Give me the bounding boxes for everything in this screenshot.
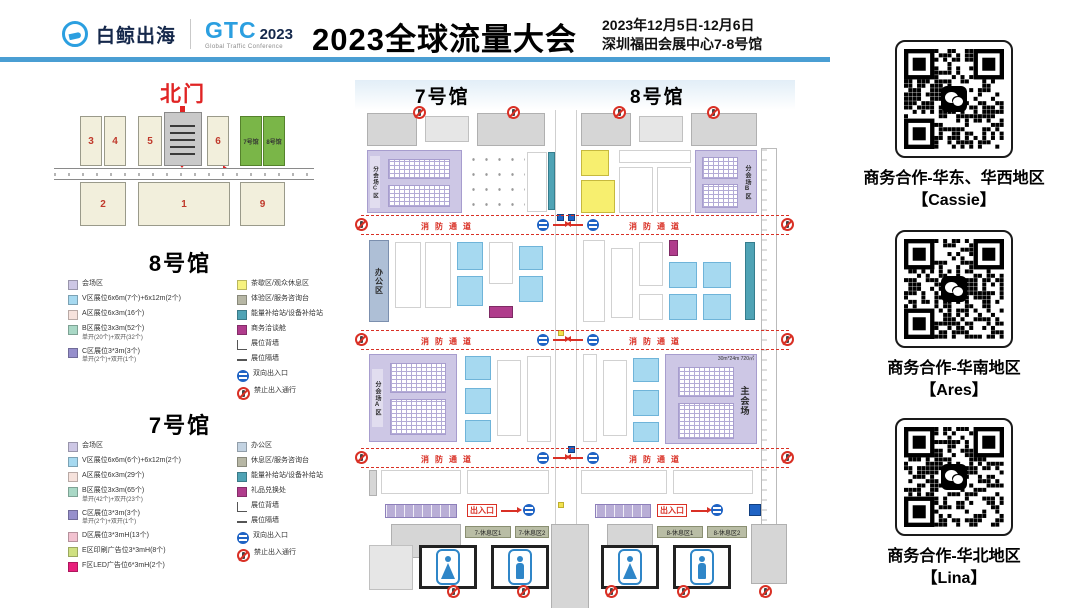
rest-area-label: 8-休息区2 — [707, 526, 747, 538]
no-entry-icon — [781, 451, 794, 464]
hall7-subvenue-a-area: 分会场A区 — [369, 354, 457, 442]
fire-lane-text: 消防通道 — [421, 221, 477, 232]
legend-item: 双向出入口 — [237, 532, 347, 544]
rest-area-label: 7-休息区2 — [515, 526, 549, 538]
legend-item: 体验区/服务咨询台 — [237, 295, 347, 305]
swatch-rest-area — [237, 457, 247, 467]
contact-name: 【Cassie】 — [848, 190, 1060, 212]
overview-hall-7: 7号馆 — [240, 116, 262, 166]
female-icon — [441, 563, 455, 579]
legend-item: 展位背墙 — [237, 340, 347, 350]
legend-label: 礼品兑换处 — [251, 487, 286, 496]
direction-arrow-icon — [571, 339, 583, 341]
two-way-entrance-icon — [237, 370, 249, 382]
wechat-icon — [941, 86, 967, 112]
hall9-label: 9 — [260, 199, 266, 210]
tea-break-area — [581, 150, 609, 176]
legend-item: A区展位6x3m(29个) — [68, 472, 230, 482]
swatch-c-booth — [68, 510, 78, 520]
booth-partition-icon — [237, 355, 247, 365]
gtc-logo-text: GTC — [205, 19, 257, 42]
a-booth-pairs — [639, 294, 663, 320]
facility-block — [581, 113, 631, 146]
main-venue-dimensions: 30m*24m 720㎡ — [718, 357, 754, 363]
hall7-subvenue-c-area: 分会场C区 — [367, 150, 462, 213]
legend-item: 禁止出入通行 — [237, 549, 347, 562]
qr-pattern — [904, 49, 1004, 149]
swatch-b-booth — [68, 487, 78, 497]
swatch-b-booth — [68, 325, 78, 335]
legend-label: 禁止出入通行 — [254, 549, 296, 558]
v-booth — [457, 276, 483, 306]
gtc-logo: GTC 2023 Global Traffic Conference — [205, 19, 293, 50]
a-booth-column — [527, 152, 547, 212]
legend-hall7-left-column: 会场区 V区展位6x6m(6个)+6x12m(2个) A区展位6x3m(29个)… — [68, 442, 230, 577]
b-booth-column — [583, 240, 605, 322]
subvenue-c-label: 分会场C区 — [370, 156, 380, 208]
legend-label: 展位背墙 — [251, 340, 279, 349]
hall8-subvenue-b-area: 分会场B区 — [695, 150, 757, 213]
legend-item: D区展位3*3mH(13个) — [68, 532, 230, 542]
restroom-female — [419, 545, 477, 589]
contact-name: 【Lina】 — [848, 568, 1060, 590]
hall3-label: 3 — [88, 136, 94, 147]
floorplan-hall8-title: 8号馆 — [630, 82, 685, 109]
hall2-label: 2 — [100, 199, 106, 210]
fire-lane: 消防通道 消防通道 — [361, 448, 789, 468]
no-entry-icon — [781, 218, 794, 231]
rest-area-label: 7-休息区1 — [465, 526, 511, 538]
legend-label: 办公区 — [251, 442, 272, 451]
swatch-gift-exchange — [237, 487, 247, 497]
two-way-entrance-icon — [587, 334, 599, 346]
event-date: 2023年12月5日-12月6日 — [602, 16, 762, 35]
fire-lane-text: 消防通道 — [629, 336, 685, 347]
a-booth-pairs — [425, 242, 451, 308]
overview-hall-5: 5 — [138, 116, 162, 166]
legend-label: 会场区 — [82, 280, 103, 289]
direction-arrow-icon — [553, 224, 565, 226]
no-entry-icon — [677, 585, 690, 598]
hall4-label: 4 — [112, 136, 118, 147]
fire-lane-text: 消防通道 — [629, 454, 685, 465]
swatch-supply-station — [237, 472, 247, 482]
fire-lane-text: 消防通道 — [421, 454, 477, 465]
no-entry-icon — [355, 451, 368, 464]
female-icon — [627, 556, 633, 562]
b-booth-column — [583, 354, 597, 442]
v-booth — [633, 422, 659, 442]
baijing-logo-text: 白鲸出海 — [96, 21, 176, 48]
legend-item: B区展位3x3m(65个)单开(42个)+双开(23个) — [68, 487, 230, 505]
legend-hall8-right-column: 茶歇区/观众休息区 体验区/服务咨询台 能量补给站/设备补给站 商务洽谈舱 展位… — [237, 280, 347, 405]
logo-divider — [190, 19, 191, 49]
facility-block — [551, 524, 589, 608]
legend-item: 展位隔墙 — [237, 355, 347, 365]
legend-label: 展位背墙 — [251, 502, 279, 511]
swatch-tea-area — [237, 280, 247, 290]
v-booth — [633, 390, 659, 416]
d-booth-strip — [385, 504, 457, 518]
qr-pattern — [904, 239, 1004, 339]
exit-label: 出入口 — [467, 504, 497, 517]
legend-item: 能量补给站/设备补给站 — [237, 472, 347, 482]
swatch-supply-station — [237, 310, 247, 320]
female-icon — [445, 556, 451, 562]
legend-label: C区展位3*3m(3个)单开(2个)+双开(1个) — [82, 510, 140, 528]
v-booth — [457, 242, 483, 270]
legend-item: V区展位6x6m(7个)+6x12m(2个) — [68, 295, 230, 305]
no-entry-icon — [237, 549, 250, 562]
legend-item: 办公区 — [237, 442, 347, 452]
legend-label: 展位隔墙 — [251, 355, 279, 364]
swatch-d-booth — [68, 532, 78, 542]
male-icon — [699, 556, 705, 562]
no-entry-icon — [759, 585, 772, 598]
legend-label: A区展位6x3m(29个) — [82, 472, 144, 481]
legend-label-main: B区展位3x3m(52个) — [82, 325, 144, 332]
legend-label-main: B区展位3x3m(65个) — [82, 487, 144, 494]
restroom-sign — [508, 549, 532, 585]
b-booth-row — [467, 470, 549, 494]
v-booth — [519, 276, 543, 302]
seating-grid — [702, 184, 738, 208]
legend-item: 展位隔墙 — [237, 517, 347, 527]
swatch-venue-area — [68, 442, 78, 452]
v-booth — [669, 294, 697, 320]
direction-arrow-icon — [553, 339, 565, 341]
a-booth-pairs — [497, 360, 521, 436]
qr-code-ares — [895, 230, 1013, 348]
legend-label-main: C区展位3*3m(3个) — [82, 510, 140, 517]
page-title: 2023全球流量大会 — [312, 14, 602, 59]
legend-label: 商务洽谈舱 — [251, 325, 286, 334]
contact-region: 商务合作-华北地区 — [848, 546, 1060, 568]
swatch-f-led — [68, 562, 78, 572]
swatch-venue-area — [68, 280, 78, 290]
no-entry-icon — [613, 106, 626, 119]
swatch-a-booth — [68, 310, 78, 320]
direction-arrow-icon — [553, 457, 565, 459]
fire-lane-text: 消防通道 — [629, 221, 685, 232]
restroom-sign — [436, 549, 460, 585]
restroom-male — [491, 545, 549, 589]
contact-label-lina: 商务合作-华北地区 【Lina】 — [848, 546, 1060, 589]
two-way-entrance-icon — [537, 452, 549, 464]
rigging-point-grid — [467, 152, 525, 210]
legend-item: 会场区 — [68, 280, 230, 290]
supply-station-strip — [745, 242, 755, 320]
no-entry-icon — [355, 218, 368, 231]
corridor-marker — [558, 502, 564, 508]
seating-grid — [388, 185, 450, 207]
qr-code-lina — [895, 418, 1013, 536]
fire-lane: 消防通道 消防通道 — [361, 330, 789, 350]
baijing-whale-logo-icon — [62, 21, 88, 47]
a-booth-pairs — [603, 360, 627, 436]
seating-grid — [678, 403, 734, 439]
supply-station-strip — [548, 152, 555, 210]
v-booth — [703, 294, 731, 320]
legend-label: 会场区 — [82, 442, 103, 451]
facility-block — [367, 113, 417, 146]
b-booth-row — [381, 470, 461, 494]
biz-pod — [669, 240, 678, 256]
two-way-entrance-icon — [537, 334, 549, 346]
b-booth-row — [673, 470, 753, 494]
subvenue-b-label: 分会场B区 — [742, 158, 753, 206]
seating-grid — [388, 159, 450, 179]
overview-hall-1: 1 — [138, 182, 230, 226]
office-area-label: 办公区 — [370, 241, 388, 321]
v-booth — [465, 388, 491, 414]
overview-north-entrance — [164, 112, 202, 166]
overview-hall-8: 8号馆 — [263, 116, 285, 166]
biz-pod — [489, 306, 513, 318]
seating-grid — [678, 367, 734, 397]
no-entry-icon — [605, 585, 618, 598]
direction-arrow-icon — [501, 510, 517, 512]
facility-block — [751, 524, 787, 584]
no-entry-icon — [781, 333, 794, 346]
legend-label-sub: 单开(20个)+双开(32个) — [82, 335, 143, 341]
b-booth-grid — [657, 167, 691, 213]
restroom-female — [601, 545, 659, 589]
v-booth — [669, 262, 697, 288]
female-icon — [623, 563, 637, 579]
qr-code-cassie — [895, 40, 1013, 158]
male-icon — [517, 556, 523, 562]
legend-label-sub: 单开(42个)+双开(23个) — [82, 497, 143, 503]
two-way-entrance-icon — [711, 504, 723, 516]
legend-label: B区展位3x3m(65个)单开(42个)+双开(23个) — [82, 487, 144, 505]
swatch-office-area — [237, 442, 247, 452]
legend-item: E区印刷广告位3*3mH(8个) — [68, 547, 230, 557]
header-logos: 白鲸出海 GTC 2023 Global Traffic Conference — [62, 14, 293, 54]
wechat-icon — [941, 464, 967, 490]
contact-name: 【Ares】 — [848, 380, 1060, 402]
two-way-entrance-icon — [523, 504, 535, 516]
legend-item: 礼品兑换处 — [237, 487, 347, 497]
facility-block — [369, 470, 377, 496]
b-booth-grid — [619, 167, 653, 213]
legend-label: B区展位3x3m(52个)单开(20个)+双开(32个) — [82, 325, 144, 343]
legend-hall7-right-column: 办公区 休息区/服务咨询台 能量补给站/设备补给站 礼品兑换处 展位背墙 展位隔… — [237, 442, 347, 567]
fire-lane: 消防通道 消防通道 — [361, 215, 789, 235]
corridor-marker — [749, 504, 761, 516]
overview-hall-6: 6 — [207, 116, 229, 166]
legend-label: 禁止出入通行 — [254, 387, 296, 396]
hall6-label: 6 — [215, 136, 221, 147]
main-venue-label: 主会场 — [738, 375, 752, 427]
office-area: 办公区 — [369, 240, 389, 322]
contact-region: 商务合作-华东、华西地区 — [848, 168, 1060, 190]
legend-label-sub: 单开(2个)+双开(1个) — [82, 357, 136, 363]
legend-hall8-heading: 8号馆 — [30, 246, 330, 278]
swatch-experience-area — [237, 295, 247, 305]
seating-grid — [390, 363, 446, 393]
legend-hall8: 会场区 V区展位6x6m(7个)+6x12m(2个) A区展位6x3m(16个)… — [68, 280, 348, 400]
restroom-sign — [690, 549, 714, 585]
venue-overview-map: 北门 3 4 5 6 7号馆 8号馆 2 1 9 — [30, 78, 330, 246]
legend-label: C区展位3*3m(3个)单开(2个)+双开(1个) — [82, 348, 140, 366]
restroom-sign — [618, 549, 642, 585]
seating-grid — [390, 399, 446, 435]
legend-item: 禁止出入通行 — [237, 387, 347, 400]
subvenue-a-label: 分会场A区 — [372, 369, 383, 427]
legend-hall7-heading: 7号馆 — [30, 408, 330, 440]
legend-item: 会场区 — [68, 442, 230, 452]
legend-label: 双向出入口 — [253, 370, 288, 379]
a-booth-pairs — [489, 242, 513, 284]
v-booth — [465, 356, 491, 380]
event-floorplan-poster: 白鲸出海 GTC 2023 Global Traffic Conference … — [0, 0, 1080, 608]
legend-item: V区展位6x6m(6个)+6x12m(2个) — [68, 457, 230, 467]
legend-label: 体验区/服务咨询台 — [251, 295, 309, 304]
hall1-label: 1 — [181, 199, 187, 210]
facility-block — [369, 545, 413, 590]
facility-block — [425, 116, 469, 142]
male-icon — [698, 563, 706, 579]
legend-item: 茶歇区/观众休息区 — [237, 280, 347, 290]
detailed-floorplan: 7号馆 8号馆 分会场C区 — [355, 80, 795, 605]
booth-partition-icon — [237, 517, 247, 527]
qr-pattern — [904, 427, 1004, 527]
a-booth-pairs — [395, 242, 421, 308]
north-gate-label: 北门 — [148, 78, 218, 108]
hall5-label: 5 — [147, 136, 153, 147]
overview-hall-4: 4 — [104, 116, 126, 166]
swatch-c-booth — [68, 348, 78, 358]
legend-item: 休息区/服务咨询台 — [237, 457, 347, 467]
swatch-biz-pod — [237, 325, 247, 335]
contact-label-ares: 商务合作-华南地区 【Ares】 — [848, 358, 1060, 401]
legend-label: 能量补给站/设备补给站 — [251, 310, 323, 319]
seating-grid — [702, 157, 738, 179]
legend-label: 能量补给站/设备补给站 — [251, 472, 323, 481]
contact-label-cassie: 商务合作-华东、华西地区 【Cassie】 — [848, 168, 1060, 211]
b-booth-column — [611, 248, 633, 318]
swatch-v-booth — [68, 457, 78, 467]
no-entry-icon — [707, 106, 720, 119]
overview-road — [54, 168, 314, 180]
d-booth-strip — [595, 504, 651, 518]
legend-label: E区印刷广告位3*3mH(8个) — [82, 547, 166, 556]
gtc-logo-subtitle: Global Traffic Conference — [205, 44, 293, 50]
legend-label: F区LED广告位6*3mH(2个) — [82, 562, 165, 571]
overview-hall-9: 9 — [240, 182, 285, 226]
v-booth — [703, 262, 731, 288]
legend-item: C区展位3*3m(3个)单开(2个)+双开(1个) — [68, 510, 230, 528]
v-booth — [465, 420, 491, 442]
b-booth-grid — [527, 356, 551, 442]
legend-hall7: 会场区 V区展位6x6m(6个)+6x12m(2个) A区展位6x3m(29个)… — [68, 442, 348, 602]
overview-hall-3: 3 — [80, 116, 102, 166]
legend-label: A区展位6x3m(16个) — [82, 310, 144, 319]
facility-block — [691, 113, 757, 146]
exit-label: 出入口 — [657, 504, 687, 517]
direction-arrow-icon — [571, 224, 583, 226]
header-divider-bar — [0, 57, 830, 62]
rest-area-label: 8-休息区1 — [657, 526, 703, 538]
hall7-green-label: 7号馆 — [243, 137, 258, 146]
no-entry-icon — [447, 585, 460, 598]
hall8-main-venue-area: 30m*24m 720㎡ 主会场 — [665, 354, 757, 444]
restroom-male — [673, 545, 731, 589]
two-way-entrance-icon — [537, 219, 549, 231]
legend-item: 商务洽谈舱 — [237, 325, 347, 335]
two-way-entrance-icon — [587, 219, 599, 231]
fire-lane-text: 消防通道 — [421, 336, 477, 347]
booth-backwall-icon — [237, 502, 247, 512]
legend-hall8-left-column: 会场区 V区展位6x6m(7个)+6x12m(2个) A区展位6x3m(16个)… — [68, 280, 230, 370]
legend-label: 展位隔墙 — [251, 517, 279, 526]
direction-arrow-icon — [571, 457, 583, 459]
legend-item: 双向出入口 — [237, 370, 347, 382]
a-booth-pairs — [639, 242, 663, 286]
swatch-a-booth — [68, 472, 78, 482]
legend-item: B区展位3x3m(52个)单开(20个)+双开(32个) — [68, 325, 230, 343]
no-entry-icon — [237, 387, 250, 400]
legend-item: 能量补给站/设备补给站 — [237, 310, 347, 320]
legend-item: C区展位3*3m(3个)单开(2个)+双开(1个) — [68, 348, 230, 366]
legend-item: A区展位6x3m(16个) — [68, 310, 230, 320]
male-icon — [516, 563, 524, 579]
legend-label: D区展位3*3mH(13个) — [82, 532, 149, 541]
legend-item: 展位背墙 — [237, 502, 347, 512]
direction-arrow-icon — [691, 510, 707, 512]
legend-label: V区展位6x6m(6个)+6x12m(2个) — [82, 457, 181, 466]
legend-label: 双向出入口 — [253, 532, 288, 541]
floorplan-hall7-title: 7号馆 — [415, 82, 470, 109]
wechat-icon — [941, 276, 967, 302]
two-way-entrance-icon — [237, 532, 249, 544]
legend-label: 茶歇区/观众休息区 — [251, 280, 309, 289]
b-booth-row — [619, 150, 691, 163]
legend-item: F区LED广告位6*3mH(2个) — [68, 562, 230, 572]
b-booth-row — [581, 470, 667, 494]
legend-label-sub: 单开(2个)+双开(1个) — [82, 519, 136, 525]
swatch-e-ad — [68, 547, 78, 557]
legend-label: 休息区/服务咨询台 — [251, 457, 309, 466]
legend-label-main: C区展位3*3m(3个) — [82, 348, 140, 355]
event-date-venue: 2023年12月5日-12月6日 深圳福田会展中心7-8号馆 — [602, 16, 762, 54]
no-entry-icon — [413, 106, 426, 119]
tea-break-area — [581, 180, 615, 213]
hall8-green-label: 8号馆 — [266, 137, 281, 146]
no-entry-icon — [507, 106, 520, 119]
gtc-logo-year: 2023 — [260, 27, 293, 42]
facility-block — [639, 116, 683, 142]
booth-backwall-icon — [237, 340, 247, 350]
swatch-v-booth — [68, 295, 78, 305]
v-booth — [633, 358, 659, 382]
legend-label: V区展位6x6m(7个)+6x12m(2个) — [82, 295, 181, 304]
contact-region: 商务合作-华南地区 — [848, 358, 1060, 380]
v-booth — [519, 246, 543, 270]
right-service-strip — [761, 148, 777, 562]
overview-hall-2: 2 — [80, 182, 126, 226]
no-entry-icon — [355, 333, 368, 346]
event-venue: 深圳福田会展中心7-8号馆 — [602, 35, 762, 54]
no-entry-icon — [517, 585, 530, 598]
two-way-entrance-icon — [587, 452, 599, 464]
